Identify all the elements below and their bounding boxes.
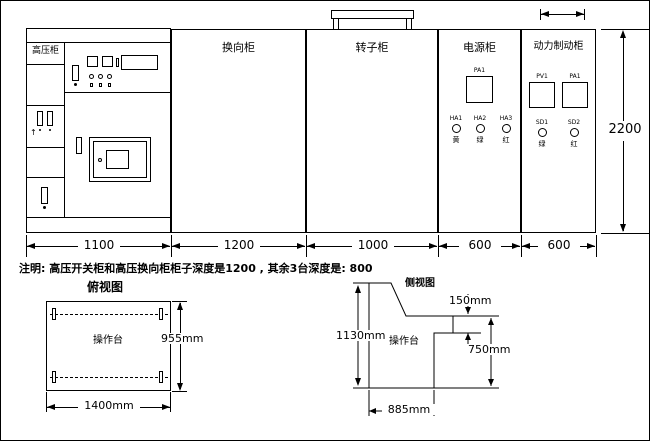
corner-bolt-slot bbox=[159, 308, 163, 320]
instrument-section-line bbox=[64, 92, 170, 93]
push-button bbox=[108, 83, 111, 87]
lamp-tag: HA3 bbox=[495, 116, 517, 122]
cabinet-label: 动力制动柜 bbox=[522, 42, 595, 52]
dimension-label-width-0: 1100 bbox=[78, 239, 120, 251]
indicator-lamp bbox=[476, 124, 485, 133]
cabinet-high-voltage: 高压柜 ↑ bbox=[26, 28, 171, 233]
dimension-label-height: 2200 bbox=[601, 123, 649, 136]
lifting-bar bbox=[331, 10, 414, 19]
arrowhead-right bbox=[576, 11, 584, 17]
cabinet-power: 电源柜 PA1 HA1 HA2 HA3 黄 绿 红 bbox=[438, 29, 521, 233]
door-handle bbox=[76, 137, 82, 154]
arrowhead-up bbox=[620, 30, 626, 38]
meter-tag: PA1 bbox=[562, 74, 588, 80]
arrowhead-up bbox=[177, 302, 183, 310]
engineering-drawing-canvas: 高压柜 ↑ 换向柜 转子柜 bbox=[0, 0, 650, 441]
arrowhead-left bbox=[307, 243, 315, 249]
dimension-label-step: 150mm bbox=[448, 295, 492, 306]
door-handle bbox=[72, 65, 79, 81]
meter-square bbox=[466, 76, 493, 103]
dimension-label-base-width: 885mm bbox=[382, 404, 436, 415]
push-button bbox=[99, 83, 102, 87]
cabinet-plinth-line bbox=[27, 217, 170, 218]
arrowhead-right bbox=[162, 243, 170, 249]
extension-line bbox=[601, 233, 649, 234]
dimension-label-width-2: 1000 bbox=[352, 239, 394, 251]
lock-dot bbox=[74, 83, 77, 86]
lamp-tag: SD1 bbox=[532, 120, 552, 126]
meter-square bbox=[102, 56, 113, 67]
lamp-color-char: 红 bbox=[495, 137, 517, 144]
top-view-label: 操作台 bbox=[78, 336, 138, 346]
meter-square bbox=[529, 82, 555, 108]
arrowhead-left bbox=[47, 404, 55, 410]
dimension-label-width-3: 600 bbox=[459, 239, 501, 251]
cabinet-label: 高压柜 bbox=[27, 47, 64, 56]
dimension-line-vertical bbox=[180, 303, 181, 389]
lifting-bar-foot bbox=[406, 18, 412, 30]
dimension-line-vertical bbox=[623, 141, 624, 231]
arrowhead-right bbox=[162, 404, 170, 410]
cabinet-label: 电源柜 bbox=[439, 42, 520, 53]
centerline-dashed bbox=[50, 377, 168, 378]
dimension-label-desk-height: 750mm bbox=[467, 344, 511, 355]
meter-tag: PA1 bbox=[466, 68, 493, 74]
lamp-color-char: 黄 bbox=[445, 137, 467, 144]
cabinet-left-column-line bbox=[64, 42, 65, 217]
meter-square bbox=[87, 56, 98, 67]
extension-line bbox=[172, 391, 187, 392]
dimension-label-width-4: 600 bbox=[538, 239, 580, 251]
display-panel bbox=[121, 55, 158, 70]
indicator-lamp bbox=[107, 74, 112, 79]
side-view-label: 操作台 bbox=[384, 337, 424, 347]
meter-tag: PV1 bbox=[529, 74, 555, 80]
cabinet-label: 换向柜 bbox=[172, 42, 305, 53]
arrowhead-left bbox=[522, 243, 530, 249]
vent-slot bbox=[37, 111, 43, 126]
lamp-color-char: 绿 bbox=[469, 137, 491, 144]
cabinet-divider-line bbox=[27, 147, 64, 148]
arrowhead-left bbox=[27, 243, 35, 249]
cabinet-reversing: 换向柜 bbox=[171, 29, 306, 233]
centerline-dashed bbox=[50, 314, 168, 315]
cabinet-divider-line bbox=[27, 177, 64, 178]
cabinet-divider-line bbox=[27, 64, 64, 65]
indicator-lamp bbox=[98, 74, 103, 79]
indicator-lamp bbox=[89, 74, 94, 79]
push-button bbox=[90, 83, 93, 87]
arrow-end-tick bbox=[584, 9, 585, 20]
lamp-tag: HA1 bbox=[445, 116, 467, 122]
dimension-label-width-1: 1200 bbox=[218, 239, 260, 251]
arrowhead-down bbox=[177, 383, 183, 391]
cabinet-rotor: 转子柜 bbox=[306, 29, 438, 233]
dimension-label-width: 1400mm bbox=[78, 400, 140, 411]
indicator-lamp bbox=[452, 124, 461, 133]
arrowhead-down bbox=[620, 224, 626, 232]
dimension-label-depth: 955mm bbox=[160, 333, 204, 344]
indicator-dot bbox=[39, 129, 41, 131]
indicator-lamp bbox=[538, 128, 547, 137]
corner-bolt-slot bbox=[52, 308, 56, 320]
lamp-color-char: 红 bbox=[564, 141, 584, 148]
indicator-lamp bbox=[502, 124, 511, 133]
lifting-bar-foot bbox=[333, 18, 339, 30]
meter-square bbox=[562, 82, 588, 108]
note-text: 注明: 高压开关柜和高压换向柜柜子深度是1200 , 其余3台深度是: 800 bbox=[19, 263, 373, 274]
lamp-tag: HA2 bbox=[469, 116, 491, 122]
dimension-tick bbox=[596, 235, 597, 257]
door-window bbox=[106, 150, 129, 169]
door-handle bbox=[41, 187, 48, 204]
indicator-dot bbox=[49, 129, 51, 131]
vent-slot bbox=[47, 111, 53, 126]
corner-bolt-slot bbox=[52, 371, 56, 383]
extension-line bbox=[170, 392, 171, 412]
door-lock bbox=[98, 158, 102, 162]
small-switch bbox=[116, 58, 119, 67]
side-view-title: 侧视图 bbox=[405, 279, 435, 289]
arrowhead-right bbox=[429, 243, 437, 249]
corner-bolt-slot bbox=[159, 371, 163, 383]
up-arrow-icon: ↑ bbox=[30, 129, 37, 137]
cabinet-top-strip-line bbox=[27, 42, 170, 43]
lock-dot bbox=[43, 206, 46, 209]
arrowhead-right bbox=[587, 243, 595, 249]
dimension-line-vertical bbox=[623, 33, 624, 121]
cabinet-dynamic-brake: 动力制动柜 PV1 PA1 SD1 SD2 绿 红 bbox=[521, 29, 596, 233]
arrowhead-left bbox=[172, 243, 180, 249]
top-view-title: 俯视图 bbox=[87, 281, 123, 293]
cabinet-label: 转子柜 bbox=[307, 42, 437, 53]
arrowhead-left bbox=[439, 243, 447, 249]
arrowhead-left bbox=[541, 11, 549, 17]
lamp-tag: SD2 bbox=[564, 120, 584, 126]
dimension-label-console-height: 1130mm bbox=[335, 330, 386, 341]
arrowhead-right bbox=[512, 243, 520, 249]
indicator-lamp bbox=[570, 128, 579, 137]
arrowhead-right bbox=[297, 243, 305, 249]
lamp-color-char: 绿 bbox=[532, 141, 552, 148]
cabinet-divider-line bbox=[27, 105, 64, 106]
